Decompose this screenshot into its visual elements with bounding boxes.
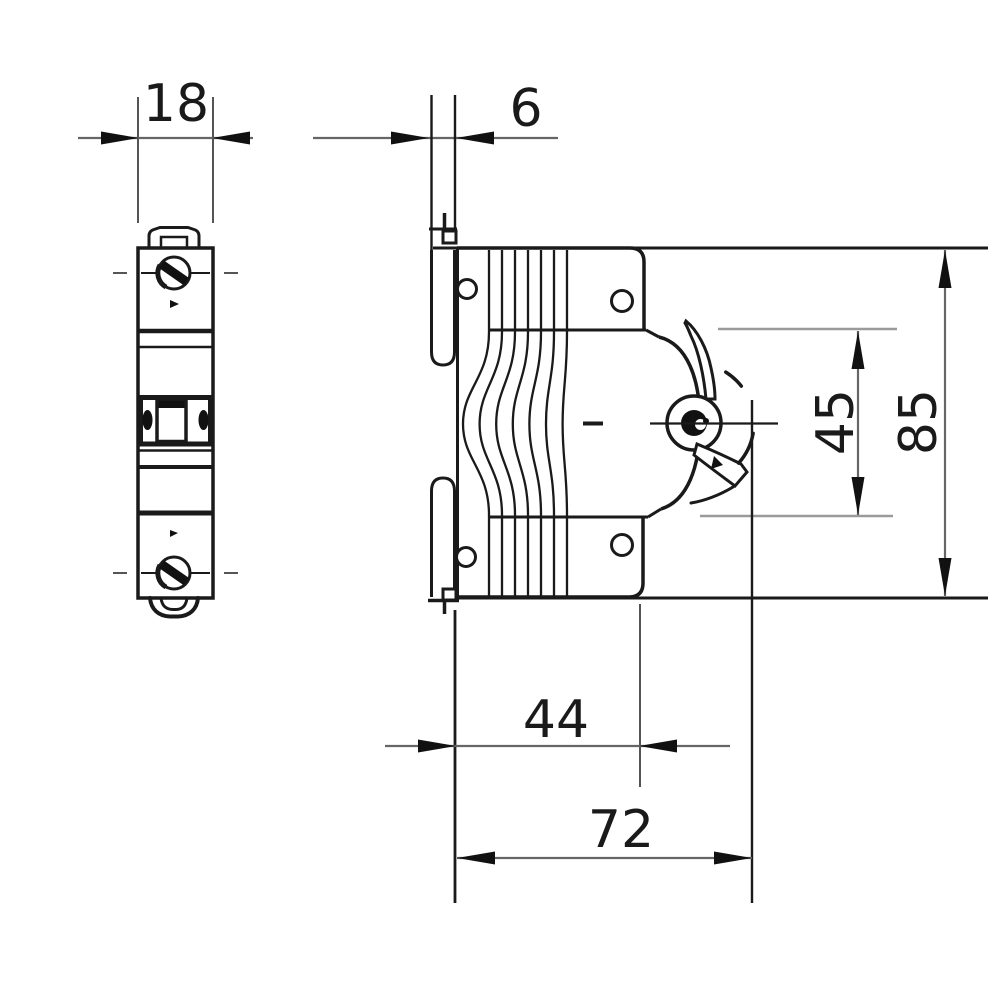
mounting-hole [612,291,633,312]
mounting-hole [457,548,476,567]
dimension-rail-depth: 6 [313,79,558,145]
arrowhead [639,740,677,753]
hook-step [443,589,456,600]
din-rail-flange-top [432,250,455,365]
terminal-screw-top [113,257,238,289]
front-bottom-clamp [150,598,198,617]
toggle-switch-front [141,398,211,445]
rib [529,250,541,597]
dimension-label-45: 45 [806,389,866,455]
dimension-label-85: 85 [889,389,949,455]
rib [546,250,554,597]
handle-section-step [648,509,661,517]
side-view [428,95,988,614]
dimension-overall-depth: 72 [457,400,752,903]
dimension-front-width: 18 [78,74,253,223]
toggle-frame-recess-left [143,410,153,430]
arrowhead [418,740,456,753]
handle-section-step [646,330,659,337]
front-view [113,228,238,617]
case-rib-pattern [463,250,567,597]
din-rail-flange-bottom [432,478,455,597]
hook-step [443,231,456,243]
dimension-label-6: 6 [509,79,542,139]
bottom-flange-outline [457,517,643,597]
arrowhead [457,852,495,865]
breaker-dimension-drawing: 18 6 [0,0,1000,1000]
arrowhead [852,477,865,515]
terminal-screw-bottom [113,557,238,589]
rib [480,250,502,597]
technical-drawing-page: 18 6 [0,0,1000,1000]
lever-upper-blade [685,321,715,399]
dimension-label-72: 72 [588,800,654,860]
din-rail-hook-top [429,213,457,243]
toggle-frame-recess-right [199,410,209,430]
arrowhead [939,558,952,596]
dimension-label-18: 18 [143,74,209,134]
arrowhead [101,132,139,145]
arrowhead [852,331,865,369]
arrowhead [714,852,752,865]
toggle-knob-band [159,401,185,408]
dimension-label-44: 44 [523,690,589,750]
arrowhead [456,132,494,145]
mounting-hole [458,280,477,299]
top-flange-outline [457,248,644,330]
arrowhead [212,132,250,145]
lever-return-curve [691,487,733,503]
rib [563,250,567,597]
arrowhead [391,132,429,145]
swing-arc-upper [726,372,742,386]
rib [463,250,489,597]
mounting-hole [612,535,633,556]
arrowhead [939,250,952,288]
dimension-overall-height: 85 [889,250,952,596]
